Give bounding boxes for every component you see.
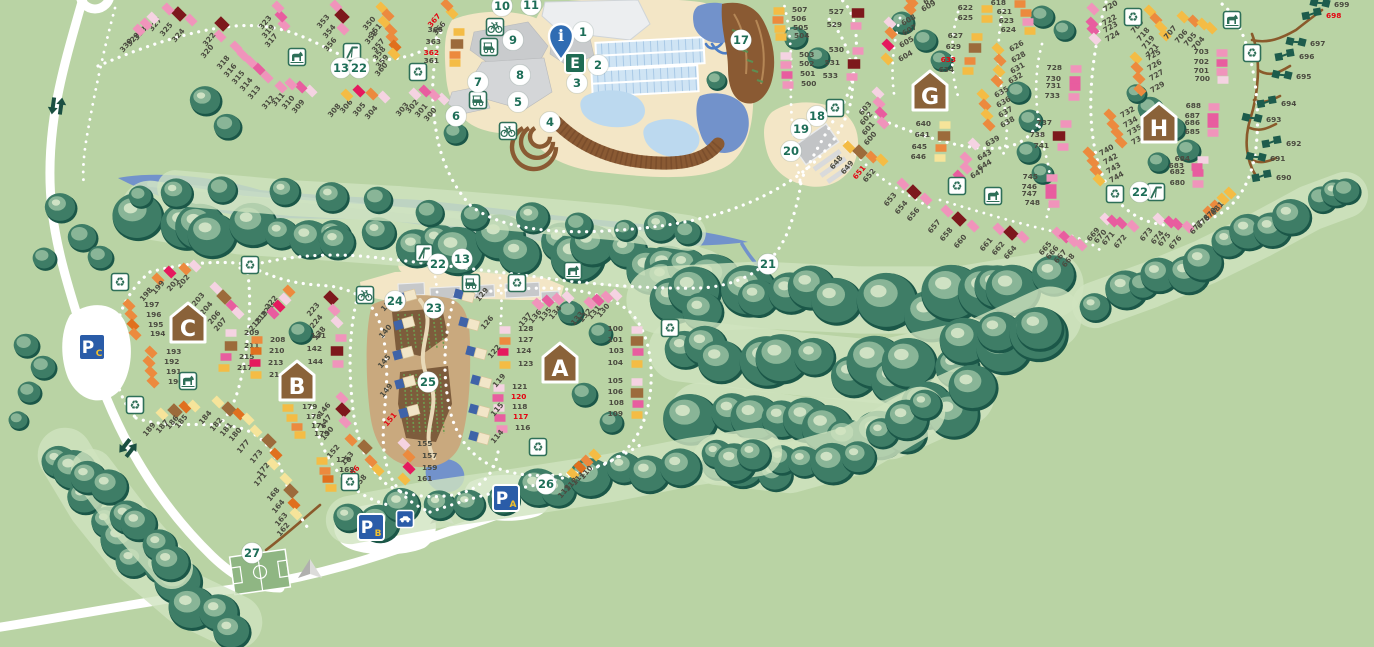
svg-text:192: 192 [164,357,179,366]
recycling-icon[interactable]: ♻ [342,474,359,491]
svg-text:B: B [289,375,306,400]
svg-text:127: 127 [518,335,533,344]
poi-marker-2[interactable]: 2 [588,55,609,76]
svg-text:533: 533 [823,71,838,80]
svg-text:C: C [180,317,196,342]
svg-text:691: 691 [1270,154,1285,163]
poi-marker-21[interactable]: 21 [758,254,779,275]
svg-text:738: 738 [1030,130,1045,139]
entrance-marker-E[interactable]: E [565,53,585,73]
svg-text:178: 178 [306,412,321,421]
svg-text:103: 103 [609,346,624,355]
dog-walking-icon[interactable] [289,49,306,66]
poi-marker-5[interactable]: 5 [508,92,529,113]
svg-text:C: C [96,349,103,359]
recycling-icon[interactable]: ♻ [1107,186,1124,203]
svg-text:680: 680 [1170,178,1185,187]
svg-text:22: 22 [430,257,446,271]
svg-text:507: 507 [792,5,807,14]
svg-text:159: 159 [422,463,437,472]
svg-text:108: 108 [609,398,624,407]
recycling-icon[interactable]: ♻ [410,64,427,81]
svg-text:11: 11 [523,0,539,12]
svg-text:690: 690 [1276,173,1291,182]
svg-text:747: 747 [1022,189,1037,198]
svg-text:106: 106 [608,387,623,396]
svg-text:25: 25 [420,375,436,389]
svg-text:208: 208 [270,335,285,344]
svg-text:E: E [570,56,580,72]
svg-text:5: 5 [514,95,522,109]
bike-rental-icon[interactable] [357,287,374,304]
svg-text:♻: ♻ [1128,10,1139,24]
golf-cart-icon[interactable] [463,275,480,292]
svg-text:633: 633 [941,55,956,64]
poi-marker-23[interactable]: 23 [424,298,445,319]
poi-marker-19[interactable]: 19 [791,119,812,140]
svg-text:101: 101 [608,335,623,344]
car-access-icon[interactable] [397,511,414,528]
svg-text:128: 128 [518,324,533,333]
svg-text:624: 624 [1001,25,1016,34]
svg-text:7: 7 [474,75,482,89]
recycling-icon[interactable]: ♻ [509,275,526,292]
svg-text:H: H [1150,117,1168,142]
dog-walking-icon[interactable] [180,373,197,390]
map-canvas: 3003013023033043053063083093103113123133… [0,0,1374,647]
svg-text:♻: ♻ [1110,187,1121,201]
recycling-icon[interactable]: ♻ [1125,9,1142,26]
poi-marker-17[interactable]: 17 [731,30,752,51]
poi-marker-24[interactable]: 24 [385,291,406,312]
svg-text:♻: ♻ [533,440,544,454]
poi-marker-3[interactable]: 3 [567,73,588,94]
svg-text:728: 728 [1047,63,1062,72]
svg-text:♻: ♻ [115,275,126,289]
svg-text:693: 693 [1266,115,1281,124]
recycling-icon[interactable]: ♻ [662,320,679,337]
svg-text:640: 640 [916,119,931,128]
svg-text:♻: ♻ [512,276,523,290]
svg-text:♻: ♻ [665,321,676,335]
svg-text:100: 100 [608,324,623,333]
svg-text:500: 500 [801,79,816,88]
poi-marker-11[interactable]: 11 [521,0,542,16]
svg-text:503: 503 [799,50,814,59]
svg-text:♻: ♻ [245,258,256,272]
svg-text:682: 682 [1170,167,1185,176]
svg-text:193: 193 [166,347,181,356]
svg-text:116: 116 [515,423,530,432]
poi-marker-22[interactable]: 22 [428,254,449,275]
svg-text:194: 194 [150,329,165,338]
svg-text:144: 144 [308,357,323,366]
recycling-icon[interactable]: ♻ [530,439,547,456]
svg-text:733: 733 [1045,91,1060,100]
svg-text:120: 120 [511,392,526,401]
svg-text:142: 142 [307,344,322,353]
svg-text:697: 697 [1310,39,1325,48]
svg-text:141: 141 [311,331,326,340]
svg-text:155: 155 [417,439,432,448]
svg-text:♻: ♻ [830,101,841,115]
svg-text:506: 506 [791,14,806,23]
svg-text:G: G [921,85,939,110]
svg-text:1: 1 [579,25,587,39]
poi-marker-1[interactable]: 1 [573,22,594,43]
parking-sign-B[interactable]: PB [358,514,384,540]
svg-text:18: 18 [809,109,825,123]
svg-text:685: 685 [1185,127,1200,136]
svg-text:17: 17 [733,33,749,47]
svg-text:121: 121 [512,382,527,391]
poi-marker-22[interactable]: 22 [349,58,370,79]
golf-cart-icon[interactable] [481,39,498,56]
svg-text:692: 692 [1286,139,1301,148]
bike-rental-icon[interactable] [487,19,504,36]
svg-text:19: 19 [793,122,809,136]
svg-text:117: 117 [513,412,528,421]
dog-walking-icon[interactable] [985,188,1002,205]
svg-text:26: 26 [538,477,554,491]
svg-text:118: 118 [512,402,527,411]
svg-text:694: 694 [1281,99,1296,108]
svg-text:618: 618 [991,0,1006,7]
svg-text:9: 9 [509,33,517,47]
svg-text:210: 210 [269,346,284,355]
poi-marker-27[interactable]: 27 [242,543,263,564]
svg-text:698: 698 [1326,11,1341,20]
svg-text:695: 695 [1296,72,1311,81]
svg-text:27: 27 [244,546,260,560]
golf-cart-icon[interactable] [470,92,487,109]
recycling-icon[interactable]: ♻ [1244,45,1261,62]
svg-text:365: 365 [428,25,443,34]
svg-text:531: 531 [825,58,840,67]
svg-text:195: 195 [148,320,163,329]
svg-text:10: 10 [494,0,510,13]
svg-text:688: 688 [1186,101,1201,110]
svg-text:700: 700 [1195,74,1210,83]
svg-text:♻: ♻ [345,475,356,489]
svg-text:745: 745 [1023,172,1038,181]
svg-text:♻: ♻ [130,398,141,412]
svg-text:A: A [510,500,517,510]
svg-text:621: 621 [997,7,1012,16]
svg-text:3: 3 [573,76,581,90]
svg-text:504: 504 [794,31,809,40]
svg-text:13: 13 [333,61,349,75]
poi-marker-13[interactable]: 13 [452,249,473,270]
svg-text:641: 641 [915,130,930,139]
dog-walking-icon[interactable] [1224,12,1241,29]
recycling-icon[interactable]: ♻ [827,100,844,117]
svg-text:22: 22 [1132,185,1148,199]
poi-marker-10[interactable]: 10 [492,0,513,17]
svg-text:104: 104 [608,358,623,367]
svg-text:501: 501 [800,69,815,78]
svg-text:209: 209 [244,328,259,337]
svg-text:6: 6 [452,109,460,123]
poi-marker-6[interactable]: 6 [446,106,467,127]
poi-marker-22[interactable]: 22 [1130,182,1151,203]
svg-text:23: 23 [426,301,442,315]
svg-text:502: 502 [799,59,814,68]
poi-marker-9[interactable]: 9 [503,30,524,51]
svg-text:197: 197 [144,300,159,309]
svg-text:i: i [558,26,564,45]
recycling-icon[interactable]: ♻ [112,274,129,291]
svg-text:748: 748 [1025,198,1040,207]
svg-text:A: A [551,357,568,382]
svg-text:123: 123 [518,359,533,368]
svg-text:634: 634 [939,65,954,74]
svg-text:625: 625 [958,13,973,22]
svg-text:645: 645 [912,142,927,151]
svg-text:529: 529 [827,20,842,29]
svg-text:362: 362 [424,48,439,57]
parking-sign-A[interactable]: PA [493,485,519,511]
svg-text:622: 622 [958,3,973,12]
poi-marker-7[interactable]: 7 [468,72,489,93]
svg-text:530: 530 [829,45,844,54]
dog-walking-icon[interactable] [565,263,582,280]
svg-text:♻: ♻ [1247,46,1258,60]
holiday-park-map: 3003013023033043053063083093103113123133… [0,0,1374,647]
svg-text:105: 105 [608,376,623,385]
svg-text:157: 157 [422,451,437,460]
poi-marker-26[interactable]: 26 [536,474,557,495]
svg-text:♻: ♻ [413,65,424,79]
svg-text:161: 161 [417,474,432,483]
poi-marker-25[interactable]: 25 [418,372,439,393]
svg-text:175: 175 [314,429,329,438]
svg-text:179: 179 [302,402,317,411]
svg-text:20: 20 [783,144,799,158]
poi-marker-20[interactable]: 20 [781,141,802,162]
svg-text:623: 623 [999,16,1014,25]
svg-text:627: 627 [948,31,963,40]
svg-text:13: 13 [454,252,470,266]
svg-text:P: P [361,518,373,538]
svg-text:686: 686 [1185,118,1200,127]
svg-text:109: 109 [608,409,623,418]
svg-text:4: 4 [546,115,554,129]
svg-text:B: B [375,529,382,539]
svg-text:P: P [82,338,94,358]
svg-text:741: 741 [1034,141,1049,150]
recycling-icon[interactable]: ♻ [242,257,259,274]
svg-text:22: 22 [351,61,367,75]
svg-text:699: 699 [1334,0,1349,9]
svg-text:P: P [496,489,508,509]
svg-text:737: 737 [1037,118,1052,127]
svg-text:629: 629 [946,42,961,51]
svg-text:213: 213 [268,358,283,367]
poi-marker-8[interactable]: 8 [510,65,531,86]
bike-rental-icon[interactable] [500,123,517,140]
svg-text:24: 24 [387,294,403,308]
recycling-icon[interactable]: ♻ [127,397,144,414]
svg-text:196: 196 [146,310,161,319]
svg-text:21: 21 [760,257,776,271]
svg-text:363: 363 [426,37,441,46]
svg-text:702: 702 [1194,57,1209,66]
poi-marker-4[interactable]: 4 [540,112,561,133]
svg-text:124: 124 [516,346,531,355]
svg-text:527: 527 [829,7,844,16]
svg-text:696: 696 [1299,52,1314,61]
parking-sign-C[interactable]: PC [79,334,105,360]
recycling-icon[interactable]: ♻ [949,178,966,195]
svg-text:170: 170 [336,455,351,464]
svg-text:646: 646 [911,152,926,161]
svg-text:731: 731 [1046,81,1061,90]
svg-text:8: 8 [516,68,524,82]
svg-text:703: 703 [1194,47,1209,56]
svg-text:2: 2 [594,58,602,72]
svg-text:♻: ♻ [952,179,963,193]
